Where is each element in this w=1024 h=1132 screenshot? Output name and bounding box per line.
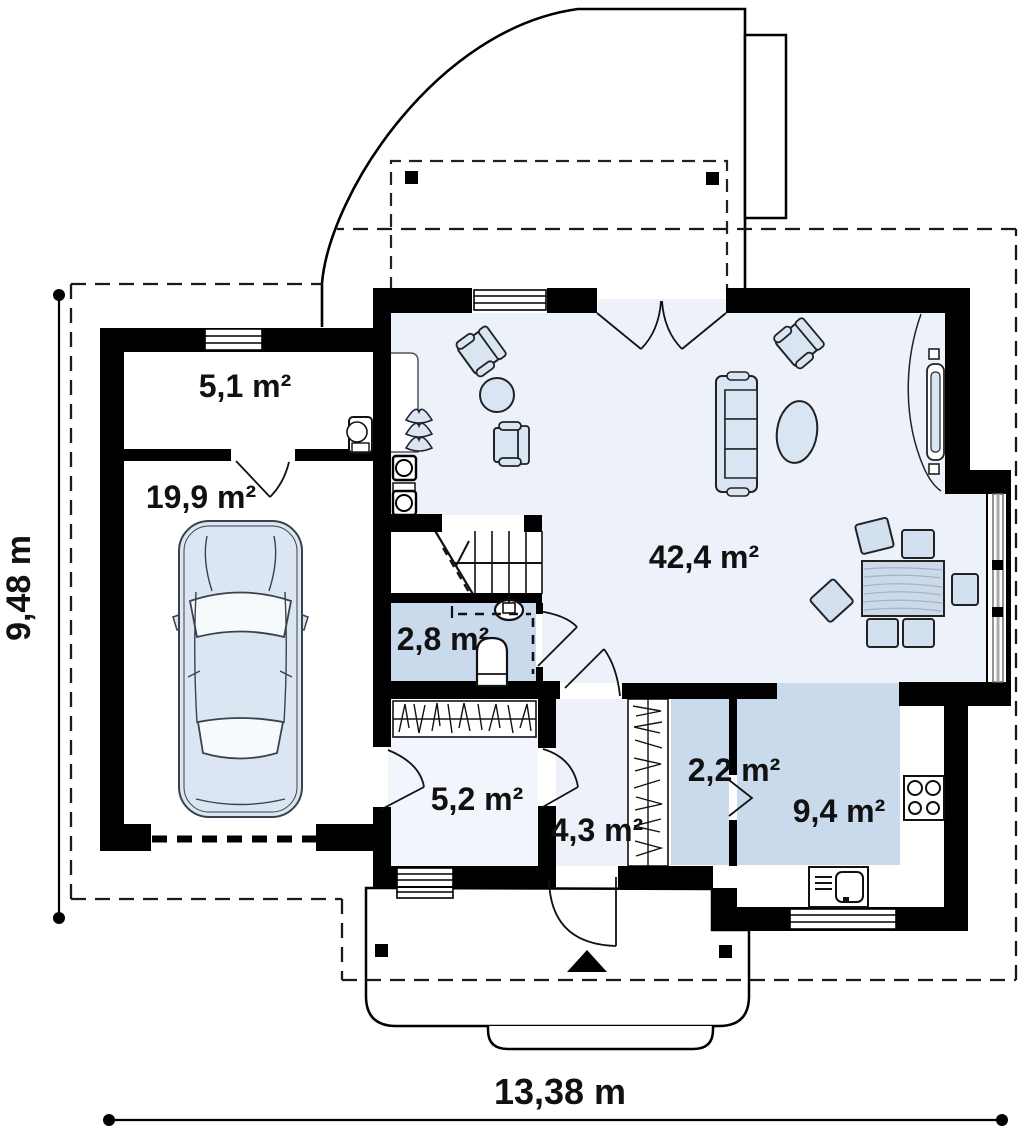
svg-text:19,9 m²: 19,9 m² <box>146 479 256 515</box>
svg-text:2,2 m²: 2,2 m² <box>688 752 780 788</box>
svg-text:5,1 m²: 5,1 m² <box>199 368 291 404</box>
svg-text:13,38 m: 13,38 m <box>494 1071 626 1112</box>
svg-text:2,8 m²: 2,8 m² <box>397 621 489 657</box>
svg-text:42,4 m²: 42,4 m² <box>649 539 759 575</box>
svg-text:5,2 m²: 5,2 m² <box>431 781 523 817</box>
svg-text:4,3 m²: 4,3 m² <box>551 812 643 848</box>
svg-text:9,48 m: 9,48 m <box>0 535 38 641</box>
svg-text:9,4 m²: 9,4 m² <box>793 793 885 829</box>
